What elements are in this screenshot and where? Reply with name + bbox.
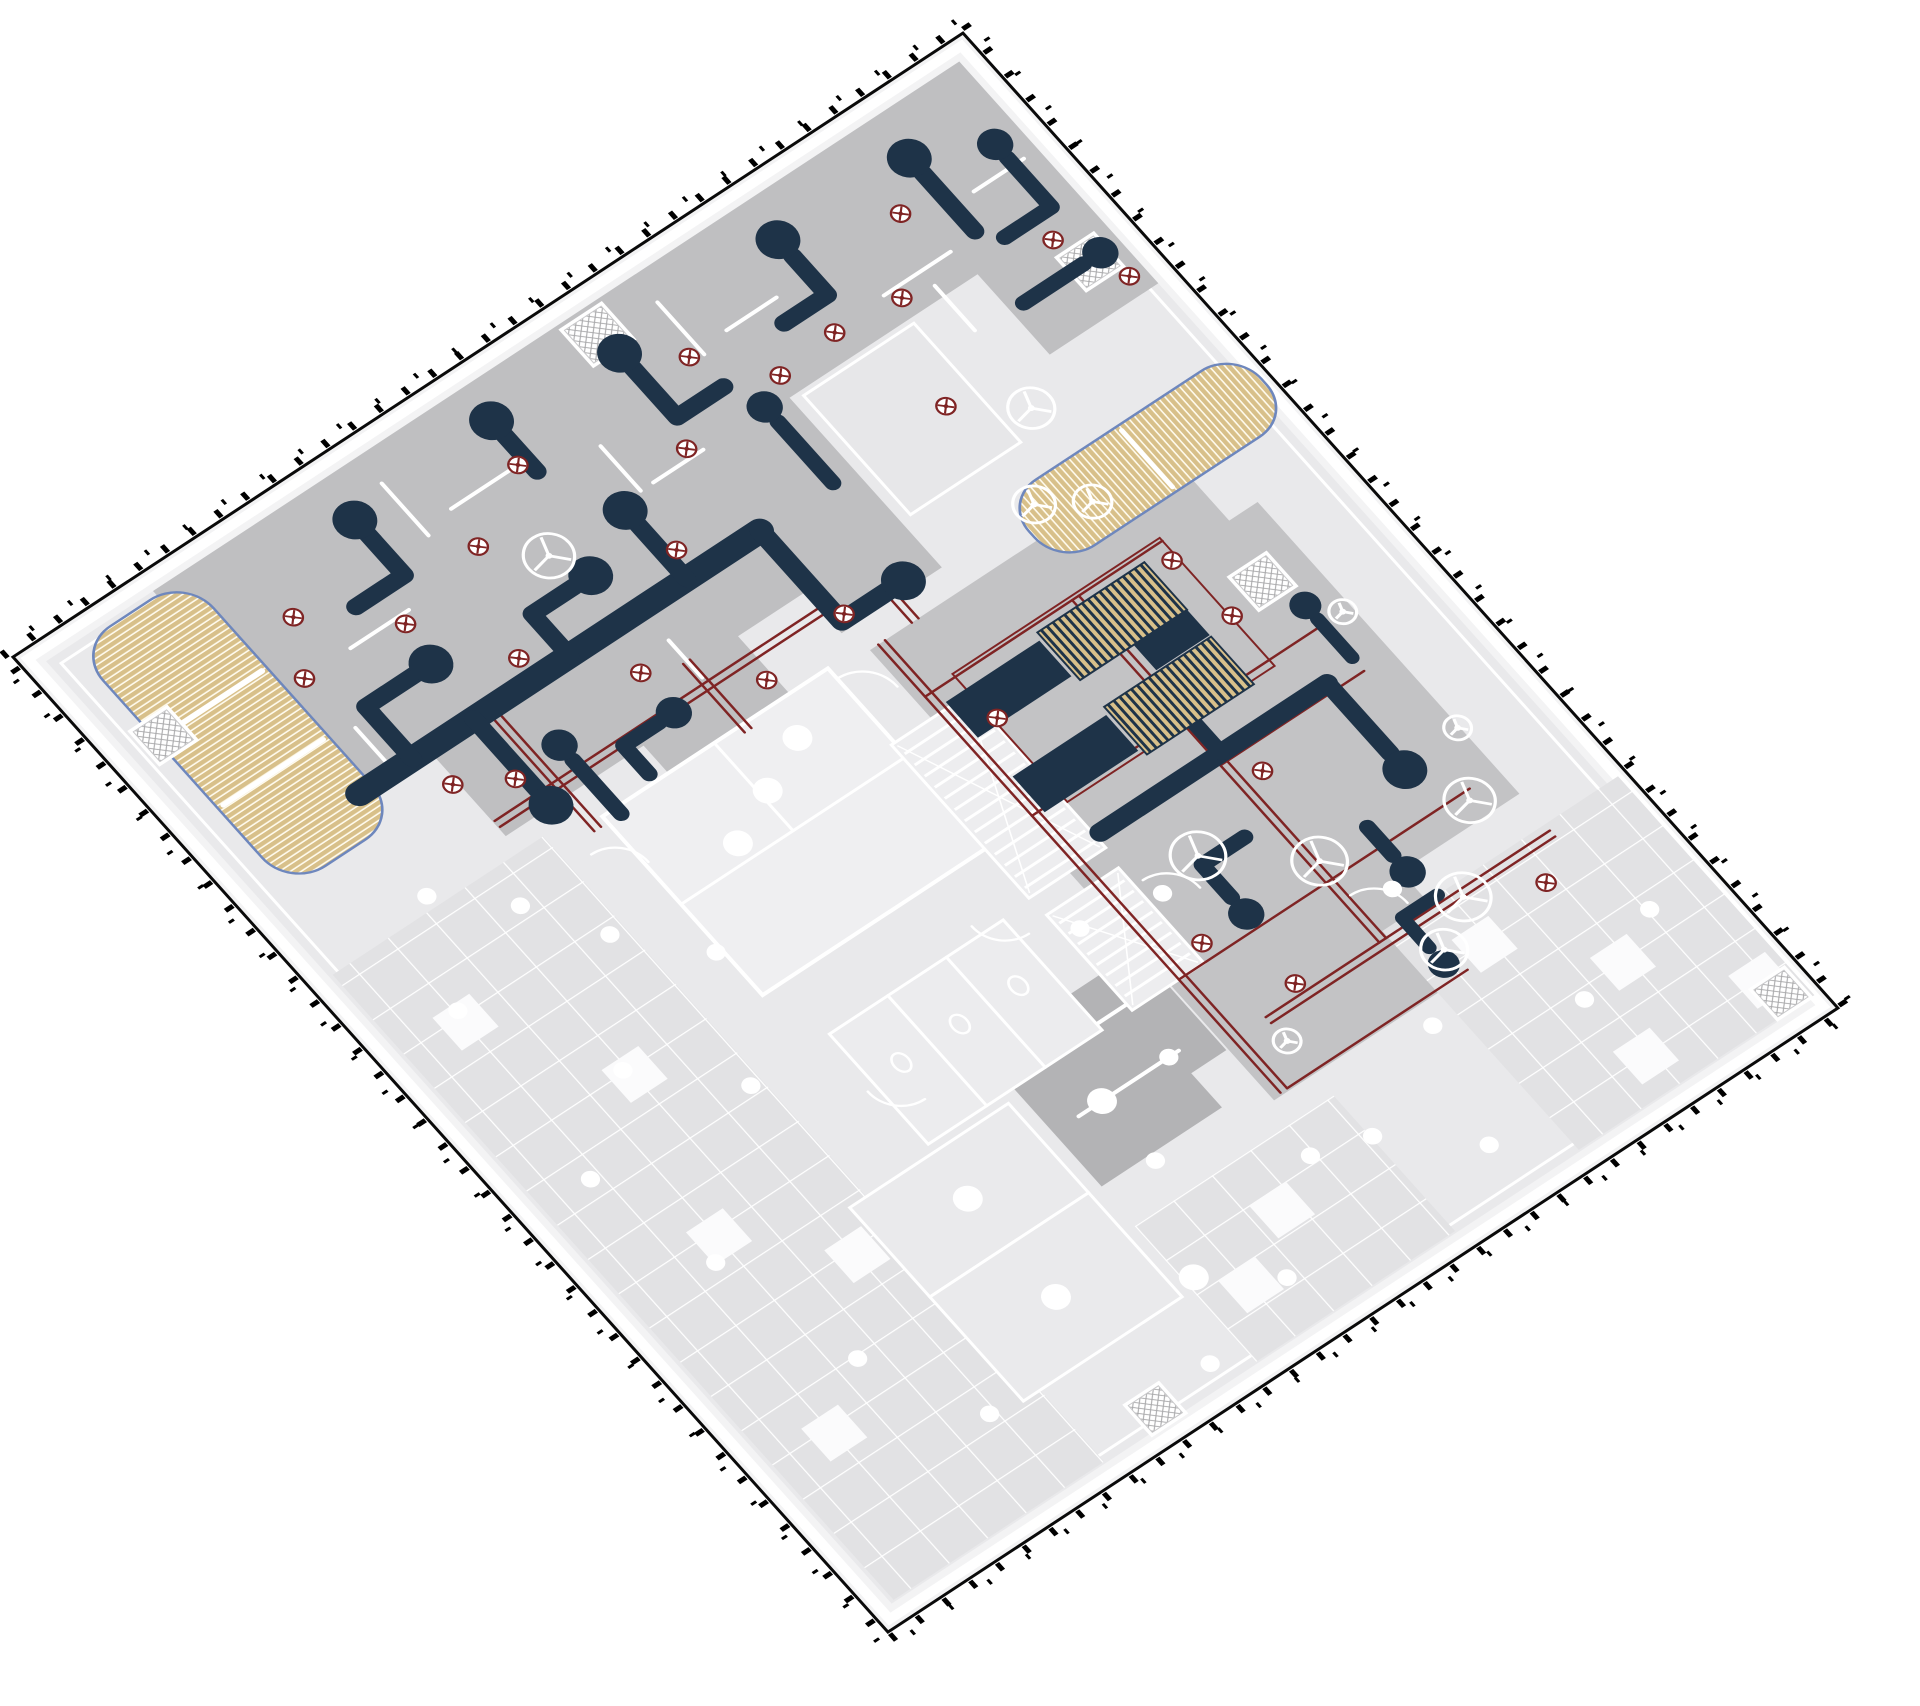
- floor-plan-drawing: [13, 33, 1838, 1632]
- rotated-plan-sheet: [13, 33, 1838, 1632]
- scanned-plan-canvas: [0, 0, 1920, 1706]
- generated-layers: [0, 15, 1859, 1650]
